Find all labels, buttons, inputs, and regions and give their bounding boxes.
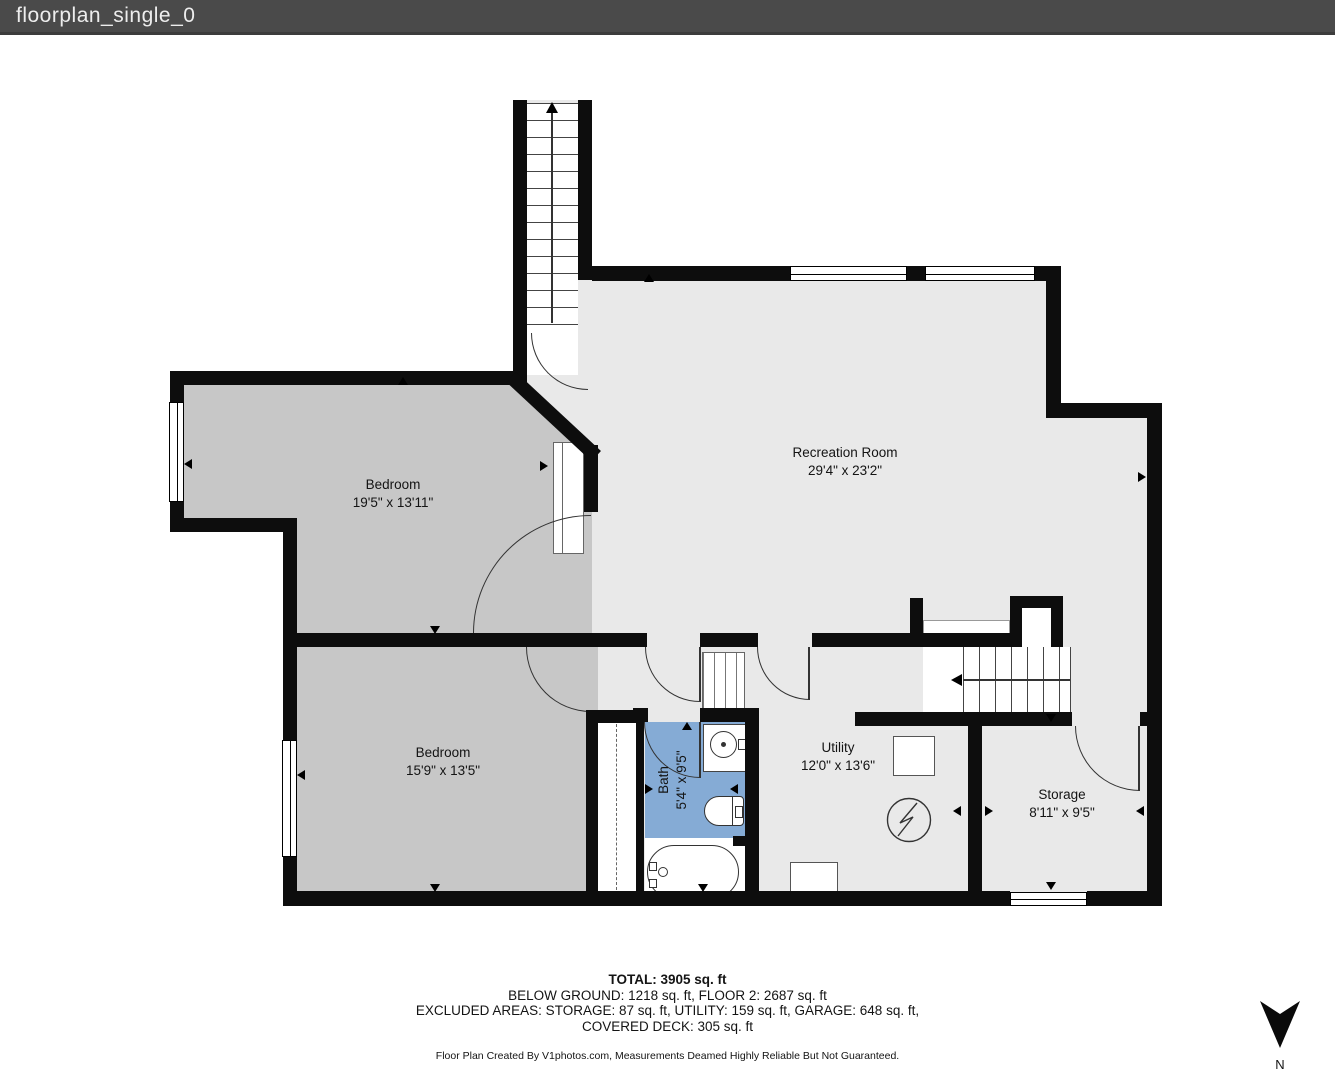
room-dims: 8'11" x 9'5": [1029, 804, 1095, 822]
area-summary: TOTAL: 3905 sq. ft BELOW GROUND: 1218 sq…: [0, 972, 1335, 1065]
tub-faucet-icon: [649, 879, 657, 888]
door-leaf-storage: [1138, 726, 1140, 791]
measurement-tick: [730, 784, 738, 794]
wall: [1087, 891, 1162, 906]
wall: [1046, 266, 1061, 418]
wall-notch: [733, 836, 745, 846]
wall: [170, 518, 296, 532]
room-label-utility: Utility 12'0" x 13'6": [801, 739, 875, 775]
wall: [586, 712, 598, 906]
door-leaf-hall: [699, 647, 701, 702]
measurement-tick: [398, 377, 408, 385]
window: [282, 740, 297, 857]
closet-bedroom-2: [598, 722, 636, 892]
wall: [592, 266, 792, 281]
room-name: Storage: [1029, 786, 1095, 804]
wall: [1046, 403, 1162, 418]
measurement-tick: [1136, 806, 1144, 816]
hall-cabinet: [702, 652, 745, 712]
room-name: Bedroom: [406, 744, 480, 762]
wall: [910, 598, 923, 647]
wall: [513, 100, 527, 378]
measurement-tick: [698, 884, 708, 892]
wall: [598, 633, 647, 647]
measurement-tick: [540, 461, 548, 471]
area-line: COVERED DECK: 305 sq. ft: [0, 1019, 1335, 1035]
window: [169, 402, 184, 502]
wall: [700, 633, 758, 647]
wall: [905, 266, 927, 281]
measurement-tick: [430, 884, 440, 892]
window: [925, 266, 1035, 281]
stair-direction-line: [551, 110, 553, 323]
measurement-tick: [682, 722, 692, 730]
measurement-tick: [1046, 714, 1056, 722]
room-dims: 15'9" x 13'5": [406, 762, 480, 780]
wall: [283, 633, 598, 647]
window: [790, 266, 907, 281]
north-label: N: [1254, 1057, 1306, 1072]
total-area: TOTAL: 3905 sq. ft: [0, 972, 1335, 988]
stair-left-arrow-icon: [951, 674, 962, 686]
wall: [855, 712, 1072, 726]
measurement-tick: [985, 806, 993, 816]
tub-drain-icon: [658, 867, 668, 877]
north-arrow-icon: [1258, 1001, 1302, 1051]
wall: [968, 712, 982, 906]
page-title: floorplan_single_0: [16, 0, 195, 32]
measurement-tick: [1046, 882, 1056, 890]
measurement-tick: [297, 770, 305, 780]
wall: [1147, 403, 1162, 906]
room-name: Utility: [801, 739, 875, 757]
floorplan-viewer: floorplan_single_0: [0, 0, 1335, 1080]
window: [1010, 892, 1087, 906]
measurement-tick: [184, 459, 192, 469]
room-label-recreation-room: Recreation Room 29'4" x 23'2": [792, 444, 897, 480]
door-leaf-utility: [808, 647, 810, 700]
tub-faucet-icon: [649, 862, 657, 871]
wall: [283, 518, 297, 740]
stair-up-arrow-icon: [546, 102, 558, 113]
wall: [1140, 712, 1162, 726]
wall: [283, 891, 1010, 906]
wall-thin: [636, 722, 644, 892]
landing-box: [1022, 608, 1051, 647]
toilet-icon: [704, 796, 744, 826]
area-line: EXCLUDED AREAS: STORAGE: 87 sq. ft, UTIL…: [0, 1003, 1335, 1019]
title-bar: floorplan_single_0: [0, 0, 1335, 35]
water-heater-icon: [886, 797, 932, 843]
room-label-bath: Bath 5'4" x 9'5": [655, 750, 691, 809]
room-name: Recreation Room: [792, 444, 897, 462]
wall: [283, 857, 297, 906]
measurement-tick: [645, 784, 653, 794]
disclaimer: Floor Plan Created By V1photos.com, Meas…: [0, 1049, 1335, 1065]
compass: N: [1254, 1001, 1306, 1072]
measurement-tick: [1138, 472, 1146, 482]
sink-drain-icon: [721, 742, 726, 747]
room-name: Bedroom: [353, 476, 434, 494]
stair-direction-line: [963, 679, 1070, 681]
wall: [578, 100, 592, 280]
wall: [1010, 596, 1063, 608]
toilet-tank-line: [732, 797, 733, 825]
measurement-tick: [953, 806, 961, 816]
room-dims: 29'4" x 23'2": [792, 462, 897, 480]
door-leaf-bath: [699, 722, 701, 778]
appliance-box: [893, 736, 935, 776]
wall: [170, 371, 527, 385]
room-label-bedroom-1: Bedroom 19'5" x 13'11": [353, 476, 434, 512]
room-dims: 19'5" x 13'11": [353, 494, 434, 512]
wall: [745, 708, 759, 906]
wall: [584, 445, 598, 512]
room-label-storage: Storage 8'11" x 9'5": [1029, 786, 1095, 822]
measurement-tick: [430, 626, 440, 634]
room-dims: 12'0" x 13'6": [801, 757, 875, 775]
room-label-bedroom-2: Bedroom 15'9" x 13'5": [406, 744, 480, 780]
room-name: Bath: [655, 750, 673, 809]
room-dims: 5'4" x 9'5": [673, 750, 691, 809]
area-line: BELOW GROUND: 1218 sq. ft, FLOOR 2: 2687…: [0, 988, 1335, 1004]
closet-rod-dashed-line: [616, 724, 617, 890]
toilet-button: [735, 806, 743, 818]
wall: [170, 371, 184, 402]
measurement-tick: [644, 274, 654, 282]
